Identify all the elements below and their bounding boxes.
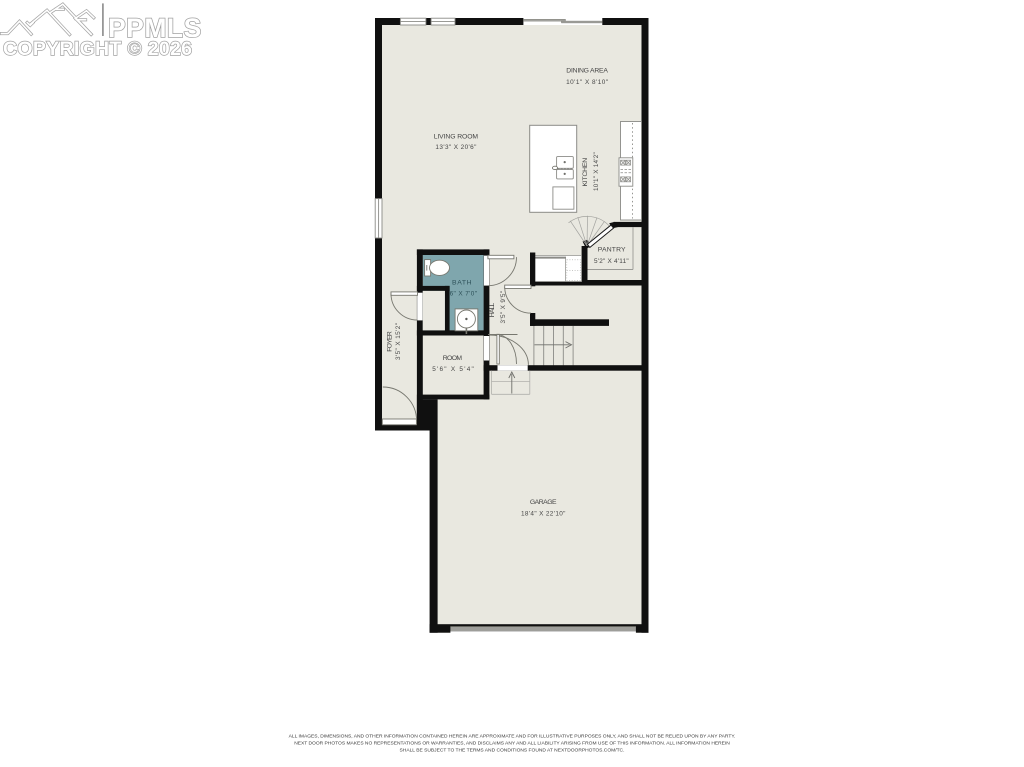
svg-text:NEXT DOOR PHOTOS MAKES NO REPR: NEXT DOOR PHOTOS MAKES NO REPRESENTATION… [294,741,730,747]
svg-text:PANTRY: PANTRY [598,246,626,253]
svg-text:BATH: BATH [452,279,472,286]
svg-text:10'1" X 14'2": 10'1" X 14'2" [593,152,600,191]
svg-text:FOYER: FOYER [386,331,393,352]
svg-text:13'3" X 20'6": 13'3" X 20'6" [435,144,476,151]
svg-text:GARAGE: GARAGE [530,499,557,506]
svg-text:3'5" X 15'2": 3'5" X 15'2" [395,323,402,360]
svg-text:HALL: HALL [489,303,496,318]
svg-text:DINING AREA: DINING AREA [566,68,608,75]
svg-text:10'1" X 8'10": 10'1" X 8'10" [566,79,608,86]
svg-text:18'4" X 22'10": 18'4" X 22'10" [521,510,566,517]
svg-text:COPYRIGHT © 2026: COPYRIGHT © 2026 [3,38,192,60]
svg-text:ALL IMAGES, DIMENSIONS, AND OT: ALL IMAGES, DIMENSIONS, AND OTHER INFORM… [289,734,736,740]
svg-text:SHALL BE SUBJECT TO THE TERMS: SHALL BE SUBJECT TO THE TERMS AND CONDIT… [400,748,625,754]
svg-text:6" X 7'0": 6" X 7'0" [450,290,477,297]
svg-text:3'5" X 9'5": 3'5" X 9'5" [500,291,507,324]
svg-text:5'2" X 4'11": 5'2" X 4'11" [594,258,629,265]
svg-text:LIVING ROOM: LIVING ROOM [434,134,479,141]
svg-text:ROOM: ROOM [443,355,463,362]
svg-text:KITCHEN: KITCHEN [582,158,589,187]
